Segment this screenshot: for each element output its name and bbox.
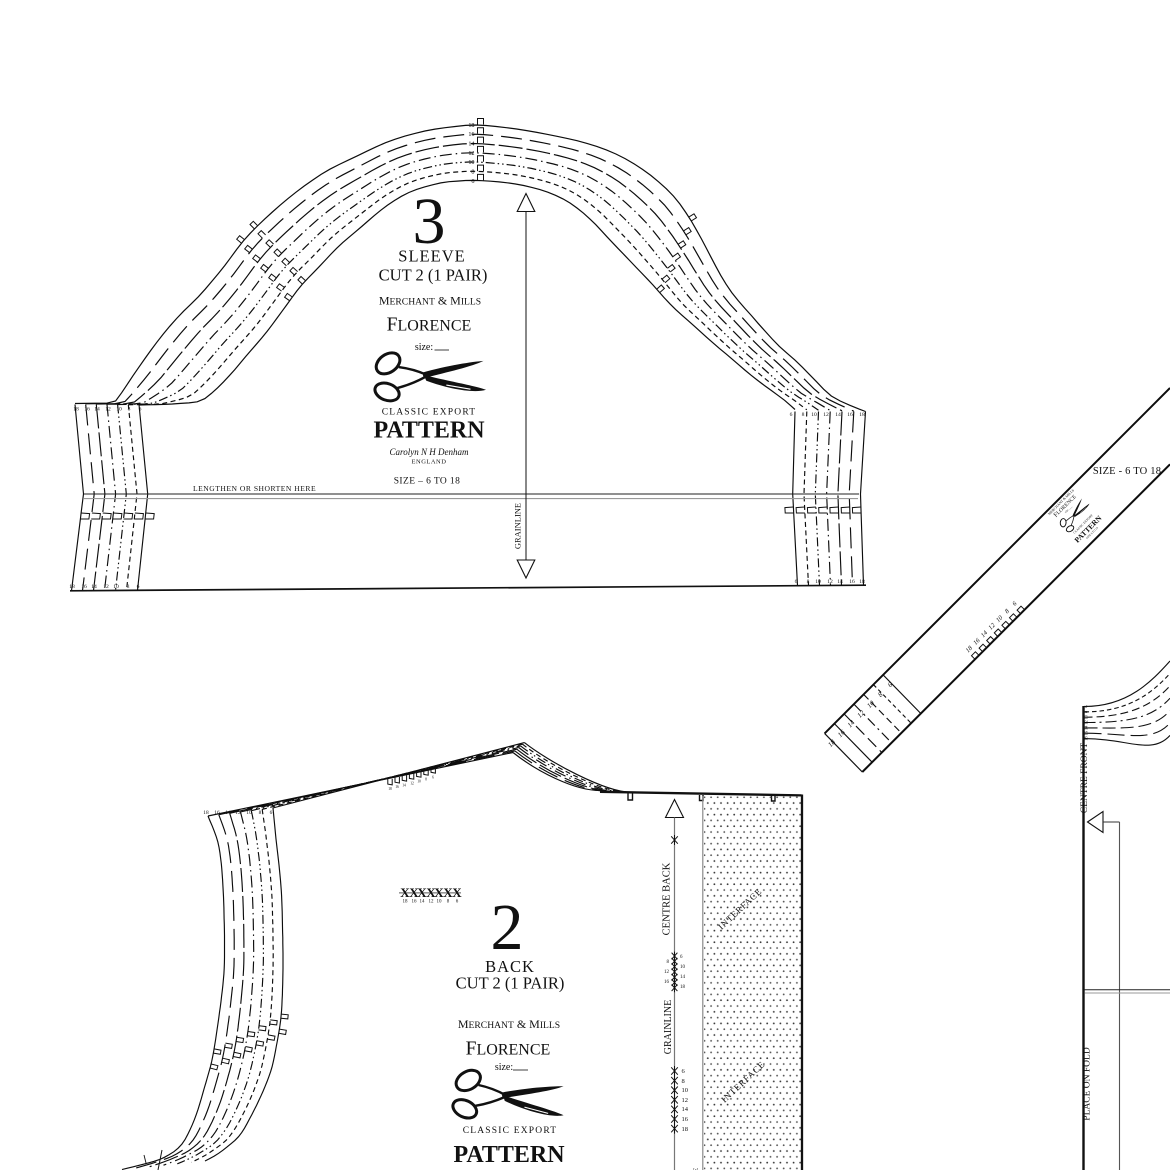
svg-text:PATTERN: PATTERN	[373, 418, 485, 444]
svg-text:16: 16	[214, 810, 220, 816]
svg-text:CUT 2 (1 PAIR): CUT 2 (1 PAIR)	[379, 266, 488, 285]
svg-text:14: 14	[468, 141, 474, 148]
svg-text:10: 10	[113, 584, 119, 590]
svg-text:SIZE – 6 TO 18: SIZE – 6 TO 18	[394, 477, 460, 487]
svg-text:16: 16	[81, 584, 87, 590]
svg-text:6: 6	[432, 775, 434, 779]
svg-text:MERCHANT & MILLS: MERCHANT & MILLS	[379, 294, 481, 308]
svg-text:8: 8	[128, 407, 131, 413]
svg-text:12: 12	[682, 1097, 689, 1104]
svg-text:2: 2	[491, 891, 524, 964]
svg-text:6: 6	[790, 412, 793, 418]
svg-text:10: 10	[811, 412, 817, 418]
svg-text:16: 16	[664, 980, 670, 985]
svg-text:18: 18	[680, 985, 686, 990]
svg-text:14: 14	[835, 412, 841, 418]
svg-text:10: 10	[437, 900, 443, 905]
svg-text:CLASSIC EXPORT: CLASSIC EXPORT	[382, 408, 477, 418]
svg-text:18: 18	[682, 1126, 689, 1133]
svg-text:10: 10	[417, 779, 421, 783]
svg-text:6: 6	[270, 810, 273, 816]
svg-text:12: 12	[105, 407, 111, 413]
svg-text:12: 12	[429, 900, 435, 905]
svg-text:12: 12	[468, 150, 474, 157]
svg-text:14: 14	[420, 900, 426, 905]
svg-text:PATTERN: PATTERN	[453, 1142, 565, 1168]
svg-text:14: 14	[225, 810, 231, 816]
svg-text:SLEEVE: SLEEVE	[398, 247, 465, 266]
svg-text:LENGTHEN OR SHORTEN HERE: LENGTHEN OR SHORTEN HERE	[193, 484, 316, 493]
svg-text:GRAINLINE: GRAINLINE	[663, 1000, 674, 1054]
svg-text:14: 14	[91, 584, 97, 590]
svg-text:12: 12	[664, 970, 670, 975]
svg-text:FLORENCE: FLORENCE	[387, 315, 472, 336]
svg-text:14: 14	[680, 975, 686, 980]
svg-text:6: 6	[471, 178, 474, 185]
svg-text:ENGLAND: ENGLAND	[412, 459, 447, 466]
svg-text:18: 18	[203, 810, 209, 816]
svg-text:10: 10	[680, 965, 686, 970]
svg-text:6: 6	[139, 407, 142, 413]
svg-text:18: 18	[69, 584, 75, 590]
svg-text:10: 10	[815, 579, 821, 585]
svg-text:10: 10	[116, 407, 122, 413]
svg-text:18: 18	[859, 579, 865, 585]
svg-text:8: 8	[471, 169, 474, 176]
svg-text:14: 14	[402, 783, 406, 787]
svg-text:size:: size:	[495, 1062, 513, 1073]
svg-text:SIZE - 6 TO 18: SIZE - 6 TO 18	[1093, 466, 1161, 477]
svg-text:Carolyn N H Denham: Carolyn N H Denham	[390, 447, 469, 457]
svg-text:CLASSIC EXPORT: CLASSIC EXPORT	[463, 1126, 558, 1136]
svg-text:16: 16	[468, 131, 474, 138]
svg-text:12: 12	[410, 781, 414, 785]
svg-text:12: 12	[823, 412, 829, 418]
svg-text:16: 16	[849, 579, 855, 585]
svg-text:18: 18	[468, 122, 474, 129]
svg-text:CUT 2 (1 PAIR): CUT 2 (1 PAIR)	[456, 974, 565, 993]
svg-text:18: 18	[859, 412, 865, 418]
svg-text:14: 14	[837, 579, 843, 585]
svg-text:16: 16	[847, 412, 853, 418]
svg-text:18: 18	[388, 787, 392, 791]
svg-text:8: 8	[807, 579, 810, 585]
svg-text:X: X	[452, 885, 462, 900]
svg-text:12: 12	[103, 584, 109, 590]
svg-text:8: 8	[802, 412, 805, 418]
svg-text:18: 18	[73, 407, 79, 413]
svg-text:PLACE ON FOLD: PLACE ON FOLD	[1083, 1047, 1093, 1121]
svg-text:16: 16	[84, 407, 90, 413]
svg-text:FLORENCE: FLORENCE	[466, 1039, 551, 1060]
svg-text:10: 10	[468, 159, 474, 166]
svg-text:10: 10	[682, 1087, 689, 1094]
svg-text:12: 12	[827, 579, 833, 585]
svg-text:size:: size:	[415, 342, 433, 353]
svg-text:12: 12	[1084, 720, 1089, 724]
svg-text:GRAINLINE: GRAINLINE	[513, 503, 523, 549]
svg-text:8: 8	[425, 777, 427, 781]
svg-text:16: 16	[412, 900, 418, 905]
svg-text:8: 8	[259, 810, 262, 816]
svg-text:6: 6	[137, 584, 140, 590]
svg-text:14: 14	[94, 407, 100, 413]
svg-text:MERCHANT & MILLS: MERCHANT & MILLS	[458, 1017, 560, 1031]
svg-text:CENTRE BACK: CENTRE BACK	[662, 862, 673, 935]
svg-text:8: 8	[127, 584, 130, 590]
svg-text:CENTRE FRONT: CENTRE FRONT	[1080, 743, 1090, 814]
svg-text:18: 18	[403, 900, 409, 905]
svg-text:10: 10	[246, 810, 252, 816]
svg-text:16: 16	[395, 785, 399, 789]
svg-text:8: 8	[682, 1078, 685, 1085]
svg-text:6: 6	[795, 579, 798, 585]
svg-text:16: 16	[682, 1116, 689, 1123]
svg-text:12: 12	[235, 810, 241, 816]
svg-text:14: 14	[682, 1106, 689, 1113]
